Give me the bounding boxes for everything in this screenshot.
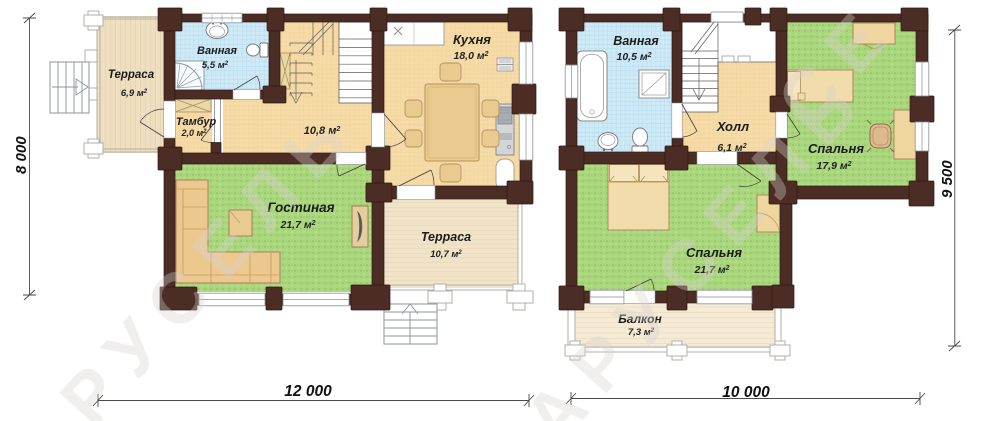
svg-text:Терраса: Терраса [421, 230, 471, 244]
svg-text:10 000: 10 000 [722, 384, 770, 401]
svg-text:Тамбур: Тамбур [176, 116, 217, 128]
svg-text:10,5 м2: 10,5 м2 [616, 51, 651, 63]
svg-text:Холл: Холл [716, 119, 749, 134]
svg-text:6,9 м2: 6,9 м2 [121, 88, 148, 99]
svg-text:9 500: 9 500 [939, 160, 956, 198]
svg-text:Терраса: Терраса [108, 69, 155, 81]
svg-text:8 000: 8 000 [13, 136, 30, 174]
svg-text:Кухня: Кухня [453, 32, 491, 47]
svg-text:5,5 м2: 5,5 м2 [202, 60, 229, 71]
svg-text:Ванная: Ванная [613, 34, 659, 48]
svg-text:18,0 м2: 18,0 м2 [453, 50, 488, 62]
svg-text:10,7 м2: 10,7 м2 [430, 249, 462, 260]
svg-text:2,0 м2: 2,0 м2 [180, 128, 207, 138]
svg-text:12 000: 12 000 [284, 383, 332, 400]
svg-text:Ванная: Ванная [197, 45, 237, 57]
